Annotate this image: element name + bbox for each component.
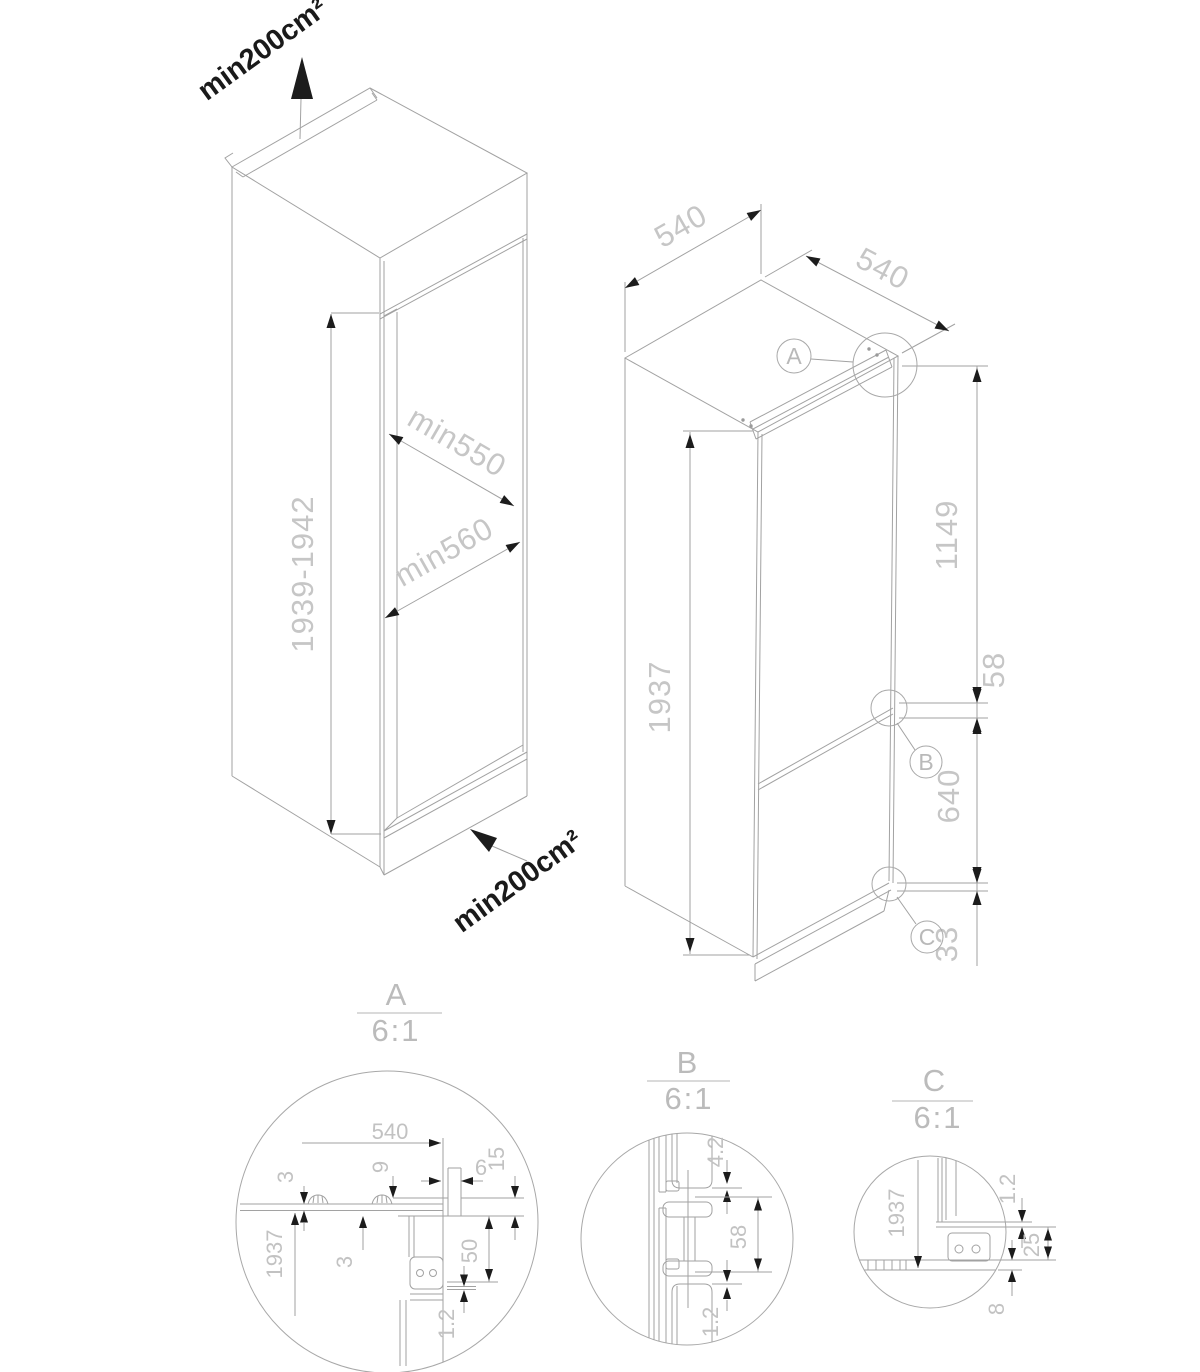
vent-bottom-label: min200cm² — [447, 824, 589, 939]
svg-text:15: 15 — [484, 1147, 509, 1171]
dim-niche-depth-min560: min560 — [383, 510, 522, 622]
svg-text:1.2: 1.2 — [434, 1309, 459, 1340]
installation-drawing: min200cm² min200cm² 1939-1942 min550 min… — [0, 0, 1200, 1372]
svg-text:B: B — [918, 749, 933, 775]
svg-text:6:1: 6:1 — [371, 1013, 420, 1048]
detail-c-header: C 6:1 — [892, 1063, 973, 1135]
svg-text:1149: 1149 — [929, 500, 964, 571]
svg-text:58: 58 — [726, 1225, 751, 1249]
cabinet-figure: min200cm² min200cm² 1939-1942 min550 min… — [192, 0, 589, 939]
svg-text:1939-1942: 1939-1942 — [285, 495, 320, 652]
svg-text:540: 540 — [851, 240, 916, 296]
svg-text:50: 50 — [457, 1239, 482, 1263]
detail-b: B 6:1 4.2 — [581, 1045, 793, 1350]
detail-a-header: A 6:1 — [357, 977, 442, 1048]
svg-text:1.2: 1.2 — [698, 1307, 723, 1338]
svg-text:min560: min560 — [388, 510, 499, 593]
detail-a-dims: 540 3 1937 9 3 6 — [262, 1119, 524, 1339]
vent-top-label: min200cm² — [192, 0, 334, 107]
detail-a: A 6:1 540 — [236, 977, 538, 1372]
svg-text:C: C — [923, 1063, 947, 1098]
detail-c: C 6:1 1937 — [854, 1063, 1056, 1315]
svg-text:1.2: 1.2 — [995, 1174, 1020, 1205]
svg-text:min550: min550 — [402, 400, 513, 484]
svg-text:C: C — [919, 924, 936, 950]
dim-niche-depth-min550: min550 — [387, 400, 517, 510]
svg-text:540: 540 — [648, 197, 713, 255]
dim-fridge-height: 1937 — [642, 431, 753, 955]
svg-text:540: 540 — [372, 1119, 409, 1144]
dim-fridge-right-column: 1149 58 640 33 — [897, 366, 1011, 966]
callout-a: A — [777, 333, 917, 397]
callout-c: C — [872, 867, 943, 953]
dim-fridge-width: 540 — [765, 240, 955, 353]
svg-text:3: 3 — [273, 1171, 298, 1183]
detail-b-dims: 4.2 58 1.2 — [695, 1137, 772, 1338]
svg-text:1937: 1937 — [262, 1230, 287, 1279]
svg-text:4.2: 4.2 — [703, 1137, 728, 1168]
svg-text:3: 3 — [332, 1256, 357, 1268]
svg-text:1937: 1937 — [884, 1189, 909, 1238]
cabinet-outline — [225, 88, 527, 875]
installation-drawing-page: min200cm² min200cm² 1939-1942 min550 min… — [0, 0, 1200, 1372]
svg-text:58: 58 — [976, 652, 1011, 688]
svg-text:8: 8 — [984, 1303, 1009, 1315]
fridge-figure: 540 540 1937 1149 58 — [623, 197, 1011, 981]
svg-text:640: 640 — [931, 769, 966, 824]
detail-c-dims: 1937 1.2 25 8 — [884, 1174, 1056, 1315]
svg-text:A: A — [386, 977, 409, 1012]
detail-c-section — [856, 1158, 998, 1270]
svg-text:6:1: 6:1 — [913, 1100, 962, 1135]
dim-niche-height: 1939-1942 — [285, 313, 381, 834]
airflow-arrow-bottom-icon — [470, 829, 527, 861]
detail-b-header: B 6:1 — [647, 1045, 730, 1116]
svg-text:9: 9 — [368, 1161, 393, 1173]
svg-text:B: B — [677, 1045, 700, 1080]
svg-text:6:1: 6:1 — [664, 1081, 713, 1116]
dim-fridge-depth: 540 — [623, 197, 763, 352]
svg-text:1937: 1937 — [642, 661, 677, 734]
fridge-outline — [625, 280, 898, 981]
svg-text:25: 25 — [1019, 1233, 1044, 1257]
svg-text:A: A — [786, 343, 802, 369]
